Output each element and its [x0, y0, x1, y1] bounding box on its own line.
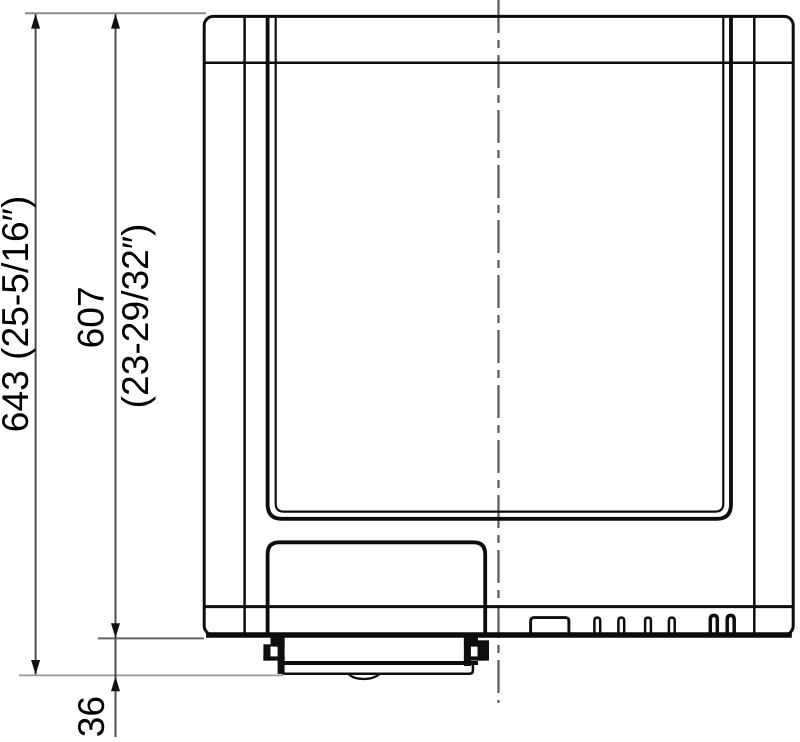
svg-text:36: 36	[70, 696, 112, 737]
svg-text:607: 607	[70, 286, 112, 348]
svg-text:643 (25-5/16″): 643 (25-5/16″)	[0, 196, 36, 432]
svg-text:(23-29/32″): (23-29/32″)	[114, 224, 156, 409]
